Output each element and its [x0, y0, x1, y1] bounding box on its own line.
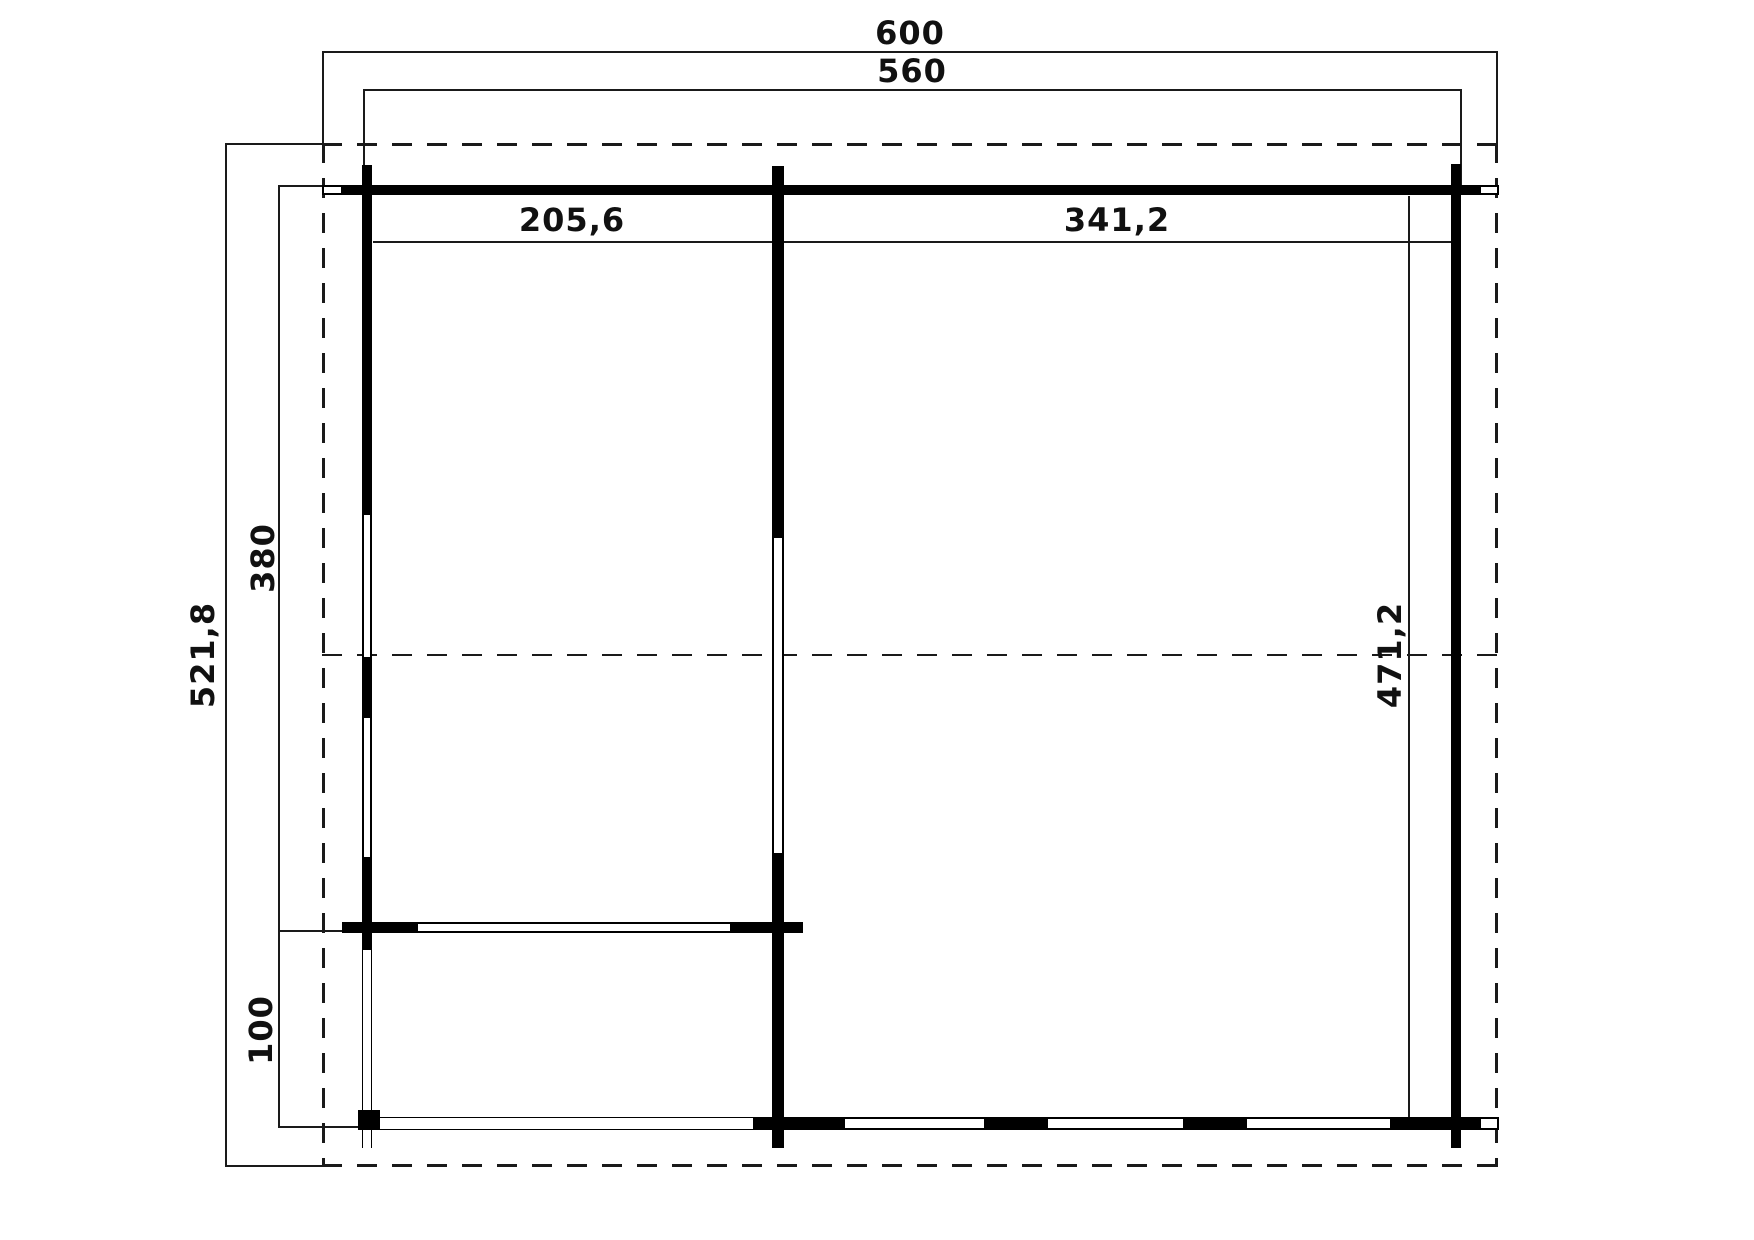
- dim-label-right-room-depth: 471,2: [1371, 602, 1409, 708]
- partition-door-window: [772, 538, 784, 853]
- divider-opening: [418, 922, 730, 933]
- ext-line-overall-width-right: [1496, 51, 1498, 145]
- dim-label-overall-width: 600: [875, 14, 945, 52]
- wall-right: [1451, 164, 1461, 1148]
- roof-outline-top: [322, 143, 1499, 146]
- log-end-notch-top-right: [1479, 185, 1499, 195]
- roof-ridge-line: [322, 654, 1499, 656]
- wall-divider-right-segment: [730, 922, 803, 933]
- roof-outline-bottom: [322, 1164, 1499, 1167]
- dim-label-right-room-width: 341,2: [1064, 201, 1170, 239]
- dim-line-room-widths: [373, 241, 1451, 243]
- ext-line-overall-width-left: [322, 51, 324, 145]
- ext-line-overall-depth-bottom: [225, 1165, 325, 1167]
- dim-line-overall-depth: [225, 143, 227, 1167]
- wall-left-lower: [362, 857, 372, 950]
- wall-bottom-seg-1: [753, 1117, 845, 1130]
- window-bottom-1: [845, 1117, 984, 1130]
- floor-plan-canvas: 600 560 205,6 341,2 521,8 380 100 471,2: [0, 0, 1754, 1240]
- dim-line-main-annex-depth: [278, 186, 280, 1128]
- log-end-notch-bottom-right: [1479, 1117, 1499, 1130]
- terrace-left-edge: [362, 950, 372, 1110]
- terrace-corner-post: [358, 1110, 380, 1130]
- dim-label-left-room-width: 205,6: [519, 201, 625, 239]
- wall-bottom-seg-4: [1390, 1117, 1480, 1130]
- window-left-1: [362, 515, 372, 657]
- ext-line-overall-depth-top: [225, 143, 325, 145]
- terrace-left-edge-stub: [362, 1130, 372, 1148]
- dim-label-overall-depth: 521,8: [184, 602, 222, 708]
- dim-label-main-depth: 380: [244, 523, 282, 593]
- dim-label-annex-depth: 100: [242, 995, 280, 1065]
- terrace-front-edge: [380, 1117, 753, 1130]
- wall-left-mid: [362, 657, 372, 718]
- window-bottom-2: [1048, 1117, 1183, 1130]
- window-bottom-3: [1247, 1117, 1390, 1130]
- wall-top: [342, 185, 1480, 195]
- log-end-notch-top-left: [322, 185, 343, 195]
- dim-label-building-width: 560: [877, 52, 947, 90]
- wall-partition-lower: [772, 853, 784, 1148]
- wall-bottom-seg-3: [1183, 1117, 1247, 1130]
- ext-line-annex-depth-bottom: [278, 1126, 360, 1128]
- wall-partition-upper: [772, 166, 784, 538]
- wall-bottom-seg-2: [984, 1117, 1048, 1130]
- wall-left-upper: [362, 165, 372, 515]
- window-left-2: [362, 718, 372, 857]
- wall-divider-left-segment: [342, 922, 418, 933]
